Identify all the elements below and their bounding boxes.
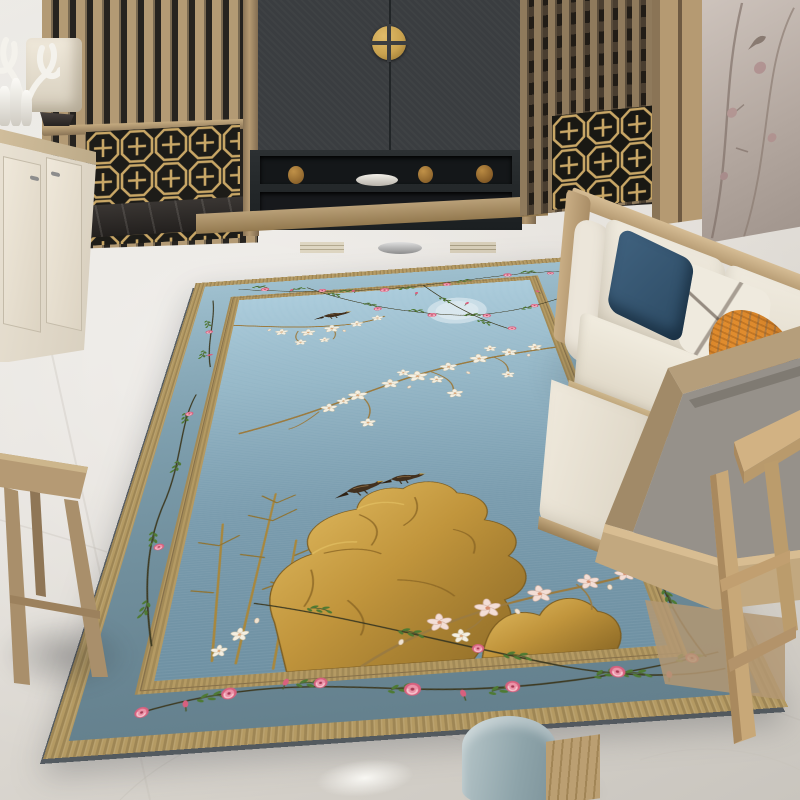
bowl-decor [356,174,398,186]
living-room-scene [0,0,800,800]
book-stack [450,242,496,253]
side-table [690,380,800,800]
mural-art [702,0,800,244]
cabinet-door [46,157,82,331]
wood-bench-slats [546,734,600,800]
plate-decor [378,242,422,254]
ottoman [462,716,556,800]
cabinet-door [3,156,41,333]
mural-wall [702,0,800,244]
brass-knob-icon [372,26,406,60]
door-handle [51,171,60,177]
white-cloth [293,745,438,800]
ceramic-jars [0,76,32,128]
wood-stool [0,415,150,735]
book-stack [300,242,344,253]
gourd-decor [288,166,304,184]
console-shelf [260,156,512,184]
tv-cabinet [258,0,520,170]
sideboard [0,10,102,362]
door-handle [30,175,39,181]
gourd-decor [418,166,433,183]
gourd-decor [476,165,493,183]
